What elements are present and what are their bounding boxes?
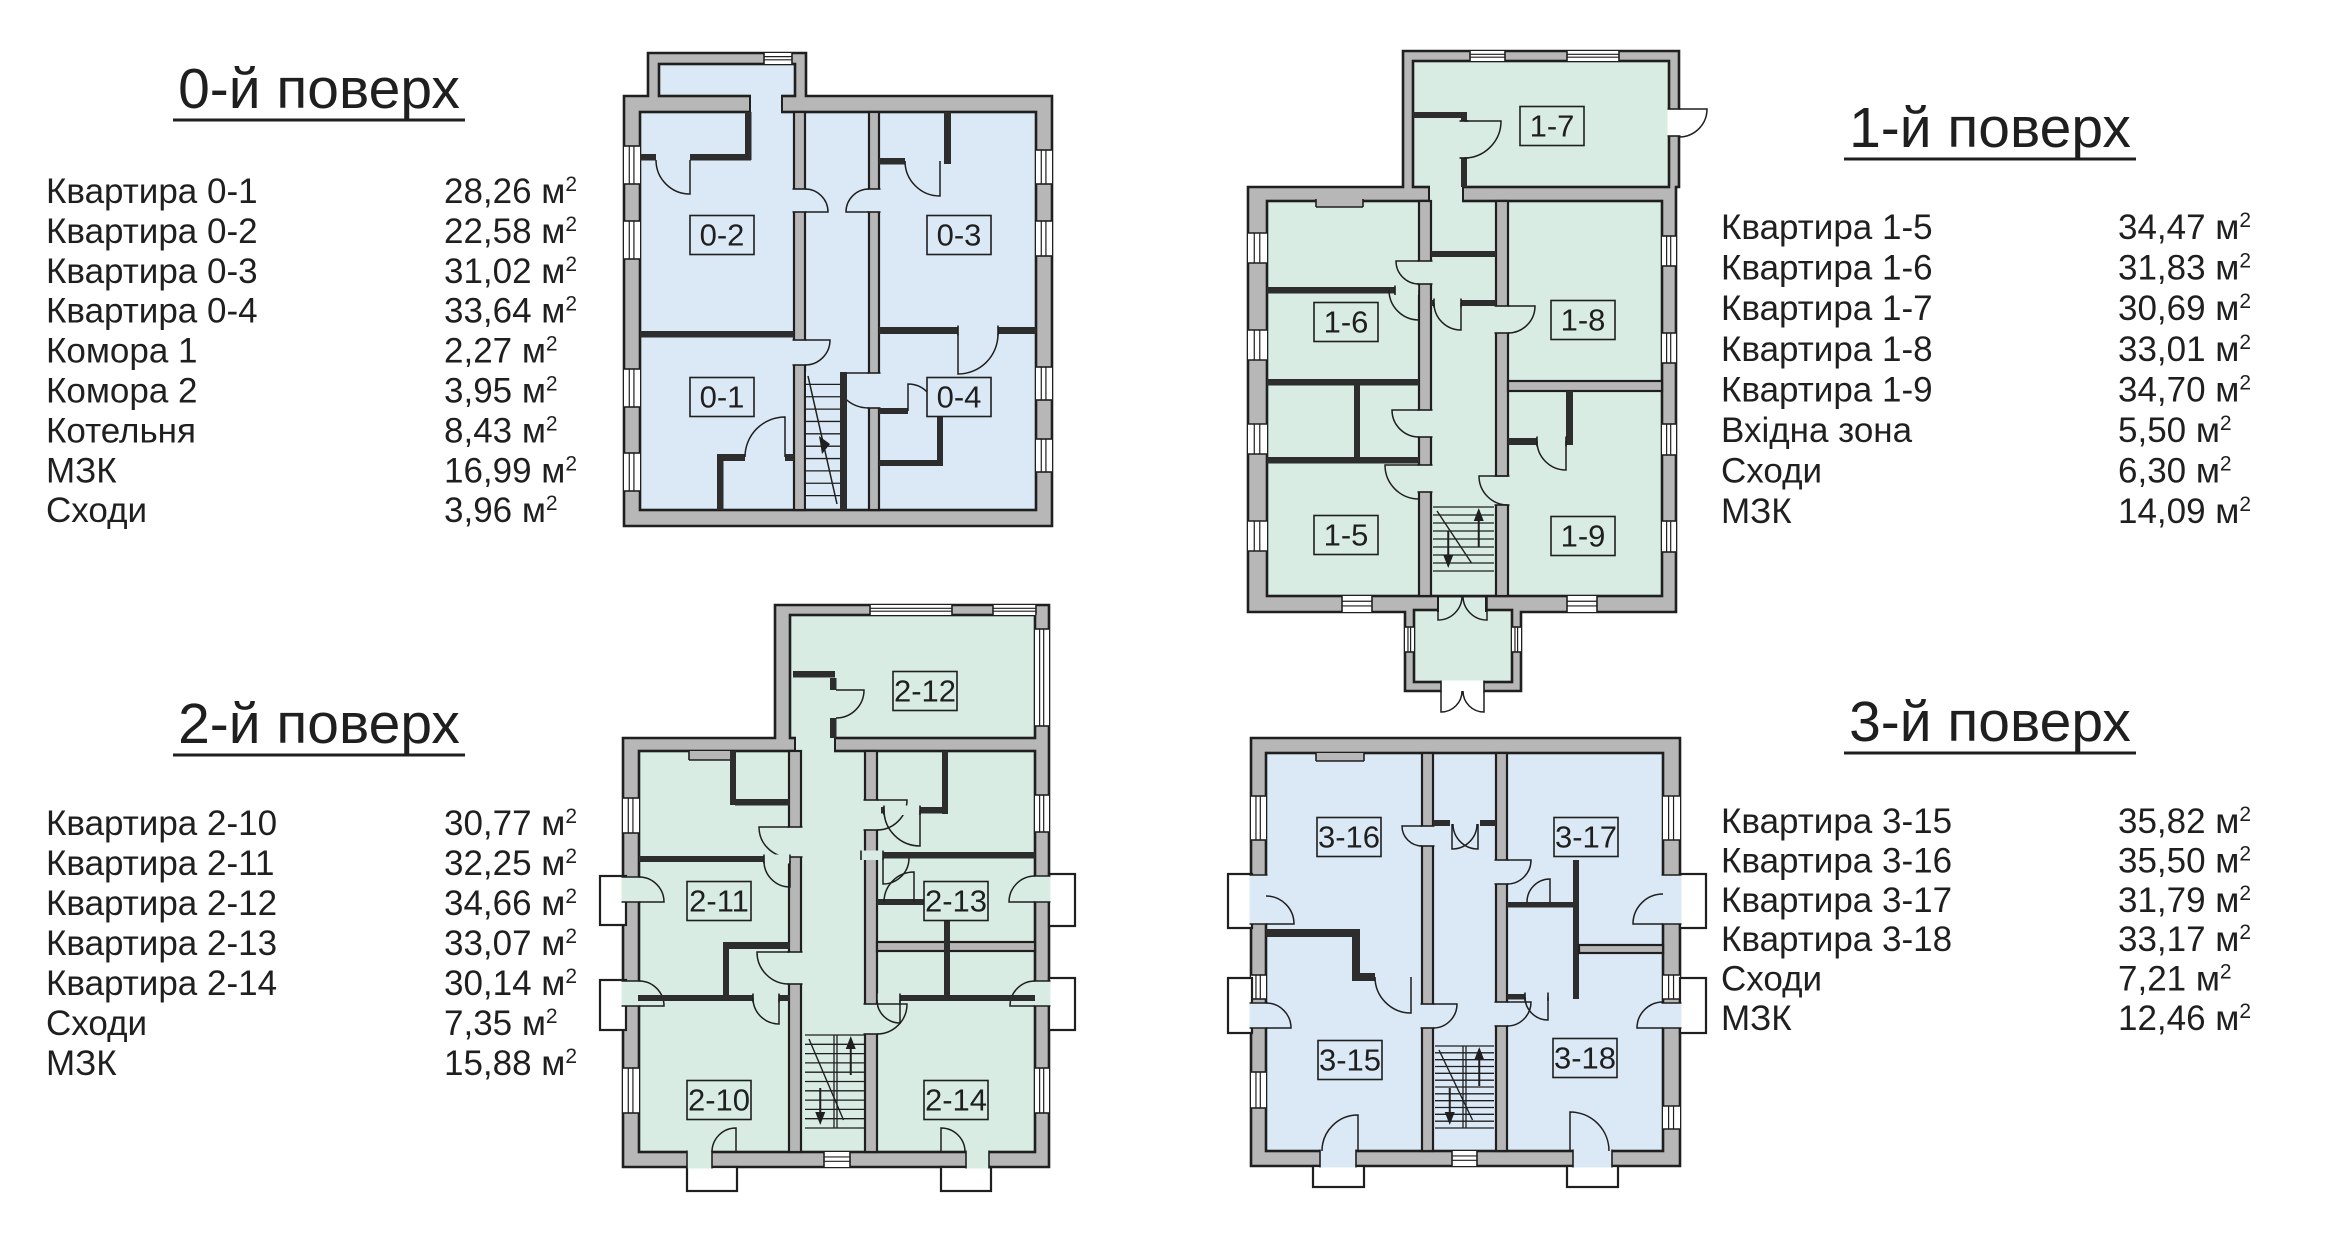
svg-text:33,64 м2: 33,64 м2 — [444, 292, 577, 331]
svg-text:Квартира 2-12: Квартира 2-12 — [46, 884, 277, 923]
svg-text:1-8: 1-8 — [1561, 303, 1606, 338]
svg-text:3,95 м2: 3,95 м2 — [444, 372, 558, 411]
svg-text:31,83 м2: 31,83 м2 — [2118, 249, 2251, 288]
svg-text:Квартира 3-15: Квартира 3-15 — [1721, 802, 1952, 841]
svg-text:30,69 м2: 30,69 м2 — [2118, 289, 2251, 328]
svg-text:Квартира 0-2: Квартира 0-2 — [46, 212, 258, 251]
svg-text:Квартира 1-7: Квартира 1-7 — [1721, 289, 1933, 328]
svg-text:33,07 м2: 33,07 м2 — [444, 924, 577, 963]
svg-text:Квартира 3-16: Квартира 3-16 — [1721, 841, 1952, 880]
svg-text:34,70 м2: 34,70 м2 — [2118, 370, 2251, 409]
svg-text:14,09 м2: 14,09 м2 — [2118, 492, 2251, 531]
svg-text:30,77 м2: 30,77 м2 — [444, 804, 577, 843]
svg-text:2-10: 2-10 — [688, 1083, 750, 1118]
svg-text:15,88 м2: 15,88 м2 — [444, 1044, 577, 1083]
svg-text:2-11: 2-11 — [689, 884, 749, 919]
svg-text:7,35 м2: 7,35 м2 — [444, 1004, 558, 1043]
svg-text:33,17 м2: 33,17 м2 — [2118, 920, 2251, 959]
svg-text:Квартира 3-17: Квартира 3-17 — [1721, 881, 1952, 920]
svg-text:1-6: 1-6 — [1324, 305, 1369, 340]
svg-text:МЗК: МЗК — [1721, 492, 1792, 531]
svg-text:1-9: 1-9 — [1561, 519, 1606, 554]
svg-text:31,02 м2: 31,02 м2 — [444, 252, 577, 291]
svg-text:6,30 м2: 6,30 м2 — [2118, 452, 2232, 491]
svg-text:5,50 м2: 5,50 м2 — [2118, 411, 2232, 450]
svg-text:2-12: 2-12 — [894, 674, 956, 709]
svg-text:Комора 2: Комора 2 — [46, 372, 198, 411]
svg-text:Квартира 3-18: Квартира 3-18 — [1721, 920, 1952, 959]
svg-text:Квартира 1-6: Квартира 1-6 — [1721, 249, 1933, 288]
svg-text:3-16: 3-16 — [1318, 820, 1380, 855]
svg-text:3-17: 3-17 — [1555, 820, 1617, 855]
svg-text:2-13: 2-13 — [925, 884, 987, 919]
svg-text:0-4: 0-4 — [937, 380, 982, 415]
svg-text:3,96 м2: 3,96 м2 — [444, 491, 558, 530]
svg-text:1-5: 1-5 — [1324, 518, 1369, 553]
svg-text:7,21 м2: 7,21 м2 — [2118, 960, 2232, 999]
svg-text:Квартира 2-14: Квартира 2-14 — [46, 964, 277, 1003]
svg-text:МЗК: МЗК — [1721, 999, 1792, 1038]
svg-text:МЗК: МЗК — [46, 1044, 117, 1083]
svg-text:35,50 м2: 35,50 м2 — [2118, 841, 2251, 880]
svg-text:Квартира 2-11: Квартира 2-11 — [46, 844, 274, 883]
svg-text:2-й поверх: 2-й поверх — [178, 692, 460, 756]
svg-text:2,27 м2: 2,27 м2 — [444, 332, 558, 371]
svg-text:34,47 м2: 34,47 м2 — [2118, 208, 2251, 247]
svg-text:Комора 1: Комора 1 — [46, 332, 198, 371]
svg-text:34,66 м2: 34,66 м2 — [444, 884, 577, 923]
svg-text:31,79 м2: 31,79 м2 — [2118, 881, 2251, 920]
svg-text:Квартира 2-13: Квартира 2-13 — [46, 924, 277, 963]
svg-text:Сходи: Сходи — [1721, 960, 1822, 999]
svg-text:0-2: 0-2 — [700, 218, 745, 253]
svg-text:0-й поверх: 0-й поверх — [178, 57, 460, 121]
svg-text:Котельня: Котельня — [46, 411, 196, 450]
svg-text:Квартира 0-4: Квартира 0-4 — [46, 292, 258, 331]
svg-text:Вхідна зона: Вхідна зона — [1721, 411, 1913, 450]
svg-text:16,99 м2: 16,99 м2 — [444, 451, 577, 490]
svg-text:2-14: 2-14 — [925, 1083, 987, 1118]
svg-text:33,01 м2: 33,01 м2 — [2118, 330, 2251, 369]
svg-text:3-й поверх: 3-й поверх — [1849, 690, 2131, 754]
svg-text:Сходи: Сходи — [46, 491, 147, 530]
svg-text:22,58 м2: 22,58 м2 — [444, 212, 577, 251]
svg-text:Квартира 1-5: Квартира 1-5 — [1721, 208, 1933, 247]
svg-text:30,14 м2: 30,14 м2 — [444, 964, 577, 1003]
svg-text:0-3: 0-3 — [937, 218, 982, 253]
svg-text:0-1: 0-1 — [700, 380, 745, 415]
svg-text:35,82 м2: 35,82 м2 — [2118, 802, 2251, 841]
svg-text:Сходи: Сходи — [46, 1004, 147, 1043]
svg-text:МЗК: МЗК — [46, 451, 117, 490]
svg-text:1-7: 1-7 — [1530, 109, 1575, 144]
svg-text:3-15: 3-15 — [1319, 1043, 1381, 1078]
svg-text:32,25 м2: 32,25 м2 — [444, 844, 577, 883]
svg-text:Квартира 0-3: Квартира 0-3 — [46, 252, 258, 291]
svg-text:8,43 м2: 8,43 м2 — [444, 411, 558, 450]
svg-text:12,46 м2: 12,46 м2 — [2118, 999, 2251, 1038]
svg-text:Квартира 0-1: Квартира 0-1 — [46, 172, 258, 211]
svg-text:Сходи: Сходи — [1721, 452, 1822, 491]
svg-text:Квартира 2-10: Квартира 2-10 — [46, 804, 277, 843]
svg-text:28,26 м2: 28,26 м2 — [444, 172, 577, 211]
svg-text:Квартира 1-8: Квартира 1-8 — [1721, 330, 1933, 369]
svg-text:1-й поверх: 1-й поверх — [1849, 96, 2131, 160]
svg-text:3-18: 3-18 — [1554, 1041, 1616, 1076]
svg-text:Квартира 1-9: Квартира 1-9 — [1721, 370, 1933, 409]
